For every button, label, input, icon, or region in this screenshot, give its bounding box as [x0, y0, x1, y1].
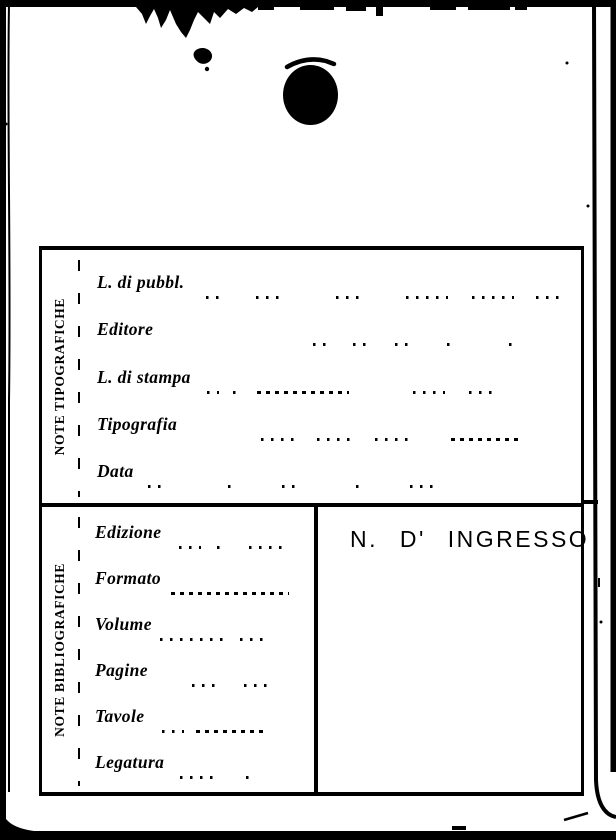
dotted-leader — [447, 343, 457, 346]
dotted-leader — [192, 684, 216, 687]
dotted-leader — [148, 485, 164, 488]
dotted-leader — [257, 391, 349, 394]
dotted-leader — [240, 638, 268, 641]
top-edge-band — [0, 0, 616, 16]
dotted-leader — [244, 684, 270, 687]
field-label: Editore — [97, 319, 153, 340]
right-edge-line — [594, 0, 616, 817]
field-row: Editore — [97, 319, 573, 351]
dotted-leader — [410, 485, 438, 488]
dotted-leader — [196, 730, 264, 733]
field-row: L. di stampa — [97, 367, 573, 399]
dotted-leader — [160, 638, 224, 641]
bibliographic-notes-title: NOTE BIBLIOGRAFICHE — [52, 563, 68, 737]
dotted-leader — [179, 546, 201, 549]
field-row: Tipografia — [97, 414, 573, 446]
dotted-leader — [256, 296, 284, 299]
ink-drop-mark — [194, 48, 213, 71]
dotted-leader — [536, 296, 566, 299]
field-label: Formato — [95, 568, 161, 589]
bottom-edge-band — [0, 804, 616, 840]
dotted-leader — [207, 391, 219, 394]
field-row: Data — [97, 461, 573, 493]
dotted-leader — [313, 343, 331, 346]
dotted-leader — [469, 391, 499, 394]
typographic-notes-box: NOTE TIPOGRAFICHE L. di pubbl. Editore — [39, 246, 584, 503]
dotted-leader — [413, 391, 445, 394]
dotted-leader — [353, 343, 371, 346]
dotted-leader — [228, 485, 238, 488]
field-label: Data — [97, 461, 134, 482]
typographic-fields: L. di pubbl. Editore L. di stampa — [80, 250, 581, 503]
dotted-leader — [472, 296, 514, 299]
field-label: Volume — [95, 614, 152, 635]
field-row: Legatura — [95, 752, 310, 784]
field-row: Edizione — [95, 522, 310, 554]
left-edge-band — [0, 0, 10, 824]
dotted-leader — [180, 776, 214, 779]
field-label: Pagine — [95, 660, 148, 681]
dotted-leader — [356, 485, 366, 488]
field-label: Edizione — [95, 522, 161, 543]
field-label: Tavole — [95, 706, 144, 727]
field-label: Legatura — [95, 752, 164, 773]
dotted-leader — [206, 296, 226, 299]
dotted-leader — [217, 546, 227, 549]
field-row: Tavole — [95, 706, 310, 738]
accession-cell: N. D' INGRESSO — [314, 507, 589, 792]
punch-shadow-arc — [287, 59, 334, 67]
dotted-leader — [261, 438, 297, 441]
dotted-leader — [171, 592, 289, 595]
dotted-leader — [246, 776, 254, 779]
bibliographic-fields: Edizione Formato Volume Pagine — [80, 507, 314, 792]
accession-number-label: N. D' INGRESSO — [350, 526, 589, 552]
catalog-card-scan: NOTE TIPOGRAFICHE L. di pubbl. Editore — [0, 0, 616, 840]
bibliographic-title-column: NOTE BIBLIOGRAFICHE — [42, 507, 78, 792]
ink-blot-mark — [136, 7, 258, 38]
dotted-leader — [406, 296, 448, 299]
field-label: L. di pubbl. — [97, 272, 184, 293]
hole-punch-mark — [283, 65, 338, 125]
dotted-leader — [451, 438, 521, 441]
right-edge-band — [611, 0, 616, 772]
field-row: L. di pubbl. — [97, 272, 573, 304]
field-row: Pagine — [95, 660, 310, 692]
dotted-leader — [249, 546, 285, 549]
field-label: L. di stampa — [97, 367, 191, 388]
dotted-leader — [395, 343, 413, 346]
dotted-leader — [336, 296, 360, 299]
bibliographic-fields-cell: NOTE BIBLIOGRAFICHE Edizione Formato Vol… — [42, 507, 314, 792]
field-label: Tipografia — [97, 414, 177, 435]
dotted-leader — [375, 438, 411, 441]
field-row: Formato — [95, 568, 310, 600]
typographic-notes-title: NOTE TIPOGRAFICHE — [52, 298, 68, 455]
dotted-leader — [509, 343, 517, 346]
bibliographic-notes-box: NOTE BIBLIOGRAFICHE Edizione Formato Vol… — [39, 503, 584, 796]
field-row: Volume — [95, 614, 310, 646]
dotted-leader — [282, 485, 298, 488]
dotted-leader — [317, 438, 353, 441]
dotted-leader — [162, 730, 184, 733]
typographic-title-column: NOTE TIPOGRAFICHE — [42, 250, 78, 503]
dotted-leader — [233, 391, 243, 394]
